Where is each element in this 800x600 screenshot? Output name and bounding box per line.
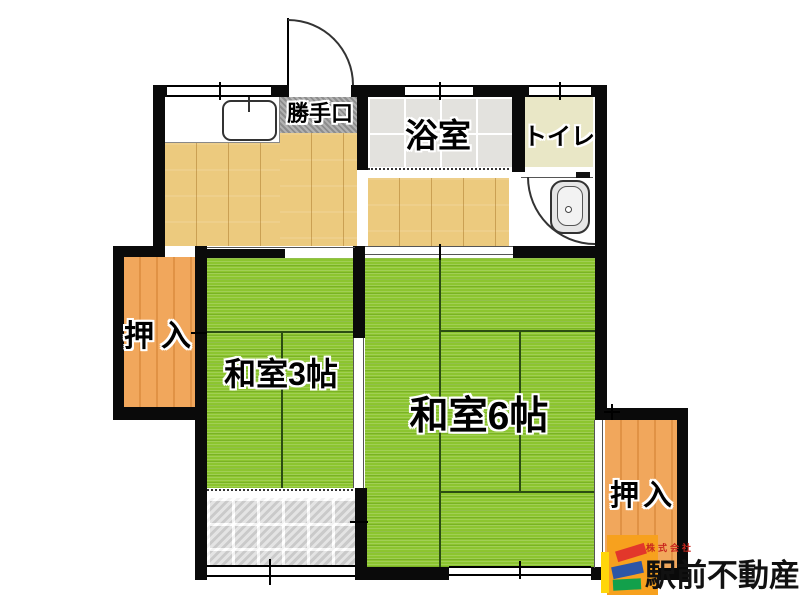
dimension-tick — [439, 244, 441, 260]
mat-line — [440, 330, 595, 332]
kitchen-floor-under-step — [280, 133, 357, 246]
logo-pole-yellow — [601, 552, 609, 593]
window — [207, 565, 355, 577]
wall — [113, 246, 124, 420]
company-logo: 株式会社 駅前不動産 — [588, 533, 800, 600]
label-back-door: 勝手口 — [287, 96, 353, 128]
wall — [153, 85, 165, 257]
mat-line — [207, 331, 353, 333]
entrance-tile-floor — [207, 498, 355, 565]
wall — [513, 246, 597, 258]
logo-bar-green — [613, 578, 642, 590]
toilet-tank-mark — [576, 172, 590, 178]
hallway-floor — [368, 178, 509, 246]
wall — [205, 249, 285, 258]
dimension-tick — [219, 82, 221, 100]
label-bathroom: 浴室 — [405, 109, 471, 157]
wall — [357, 97, 368, 170]
faucet-icon — [248, 95, 250, 112]
wall — [595, 408, 687, 420]
logo-company-name: 駅前不動産 — [645, 550, 800, 595]
dimension-tick — [604, 411, 620, 413]
opening-line — [353, 338, 354, 488]
dimension-tick — [269, 559, 271, 585]
label-room-6mat: 和室6帖 — [410, 385, 549, 441]
back-door-arc — [288, 19, 354, 85]
wall — [473, 85, 529, 97]
wall — [353, 246, 365, 338]
mat-line — [440, 491, 595, 493]
toilet-drain-dot — [565, 206, 572, 213]
label-closet-right: 押入 — [610, 472, 676, 514]
room3-sliding-door — [207, 489, 353, 491]
wall — [355, 567, 449, 580]
opening-line — [207, 247, 355, 248]
label-toilet: トイレ — [523, 117, 595, 152]
dimension-tick — [559, 82, 561, 100]
wall — [351, 85, 405, 97]
dimension-tick — [439, 82, 441, 100]
bath-folding-door — [368, 168, 509, 170]
label-closet-left: 押入 — [124, 311, 198, 355]
label-room-3mat: 和室3帖 — [224, 349, 338, 395]
dimension-tick — [350, 521, 368, 523]
floor-plan: 勝手口 浴室 トイレ 押入 和室3帖 和室6帖 押入 株式会社 駅前不動産 — [0, 0, 800, 600]
wall — [113, 407, 207, 420]
wall — [195, 246, 207, 580]
opening-line — [363, 338, 364, 488]
dimension-tick — [519, 561, 521, 579]
